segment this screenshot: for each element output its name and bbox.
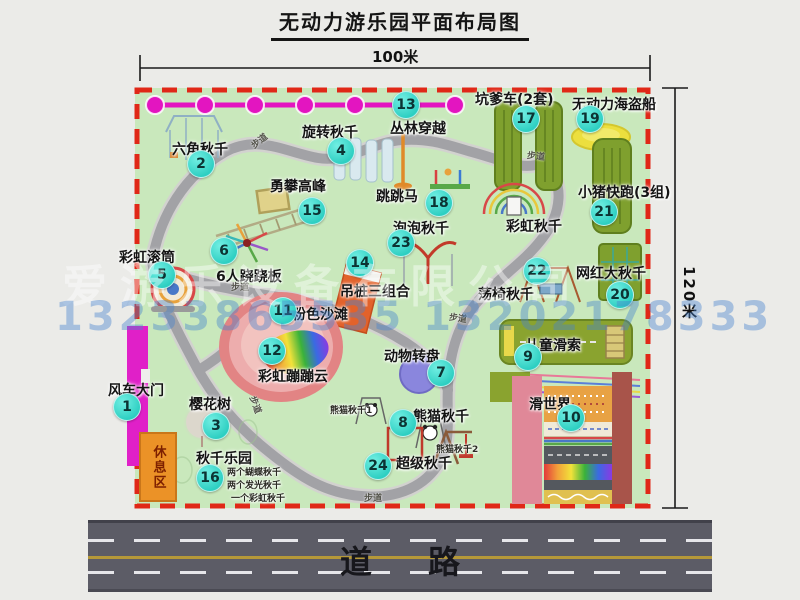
poi-label-12: 彩虹蹦蹦云 xyxy=(258,366,328,386)
rest-area: 休息区 xyxy=(139,432,177,502)
height-dimension-label: 120米 xyxy=(679,266,700,320)
poi-badge-14: 14 xyxy=(346,249,374,277)
rainbow-swing-label: 彩虹秋千 xyxy=(506,216,562,236)
swing-park-note-2: 两个发光秋千 xyxy=(227,478,281,491)
poi-label-3: 樱花树 xyxy=(189,394,231,414)
width-dimension-label: 100米 xyxy=(372,46,418,67)
poi-badge-5: 5 xyxy=(148,261,176,289)
poi-badge-10: 10 xyxy=(557,404,585,432)
poi-badge-20: 20 xyxy=(606,281,634,309)
poi-badge-17: 17 xyxy=(512,105,540,133)
poi-badge-7: 7 xyxy=(427,359,455,387)
poi-label-11: 粉色沙滩 xyxy=(292,304,348,324)
poi-badge-21: 21 xyxy=(590,198,618,226)
poi-badge-11: 11 xyxy=(269,297,297,325)
panda-swing-1-note: 熊猫秋千1 xyxy=(330,403,372,416)
panda-swing-2-note: 熊猫秋千2 xyxy=(436,442,478,455)
poi-label-8: 熊猫秋千 xyxy=(413,406,469,426)
poi-label-24: 超级秋千 xyxy=(396,453,452,473)
poi-label-14: 吊桩三组合 xyxy=(340,281,410,301)
poi-label-17: 坑爹车(2套) xyxy=(475,89,554,109)
poi-badge-15: 15 xyxy=(298,197,326,225)
poi-badge-9: 9 xyxy=(514,343,542,371)
poi-badge-2: 2 xyxy=(187,150,215,178)
park-layout-map: 无动力游乐园平面布局图 100米 120米 休息区 风车大门 六角秋千 樱花树 … xyxy=(0,0,800,600)
poi-badge-8: 8 xyxy=(389,409,417,437)
poi-badge-1: 1 xyxy=(113,393,141,421)
poi-label-18: 跳跳马 xyxy=(376,186,418,206)
poi-badge-18: 18 xyxy=(425,189,453,217)
poi-badge-24: 24 xyxy=(364,452,392,480)
poi-badge-3: 3 xyxy=(202,412,230,440)
poi-badge-12: 12 xyxy=(258,337,286,365)
poi-label-13: 丛林穿越 xyxy=(390,118,446,138)
poi-badge-4: 4 xyxy=(327,137,355,165)
poi-badge-16: 16 xyxy=(196,464,224,492)
poi-label-20: 网红大秋千 xyxy=(576,263,646,283)
page-title: 无动力游乐园平面布局图 xyxy=(0,6,800,41)
walkway-label: 步道 xyxy=(231,280,249,293)
swing-park-note-3: 一个彩虹秋千 xyxy=(231,491,285,504)
poi-badge-13: 13 xyxy=(392,91,420,119)
poi-badge-19: 19 xyxy=(576,105,604,133)
walkway-label: 步道 xyxy=(364,491,382,504)
walkway-label: 步道 xyxy=(448,310,468,325)
swing-park-note-1: 两个蝴蝶秋千 xyxy=(227,465,281,478)
poi-badge-22: 22 xyxy=(523,257,551,285)
walkway-label: 步道 xyxy=(526,148,545,163)
poi-label-15: 勇攀高峰 xyxy=(270,176,326,196)
poi-label-21: 小猪快跑(3组) xyxy=(578,182,671,202)
road-label: 道路 xyxy=(88,537,712,583)
poi-badge-6: 6 xyxy=(210,237,238,265)
poi-label-22: 荡椅秋千 xyxy=(478,284,534,304)
road: 道路 xyxy=(88,520,712,592)
poi-badge-23: 23 xyxy=(387,229,415,257)
